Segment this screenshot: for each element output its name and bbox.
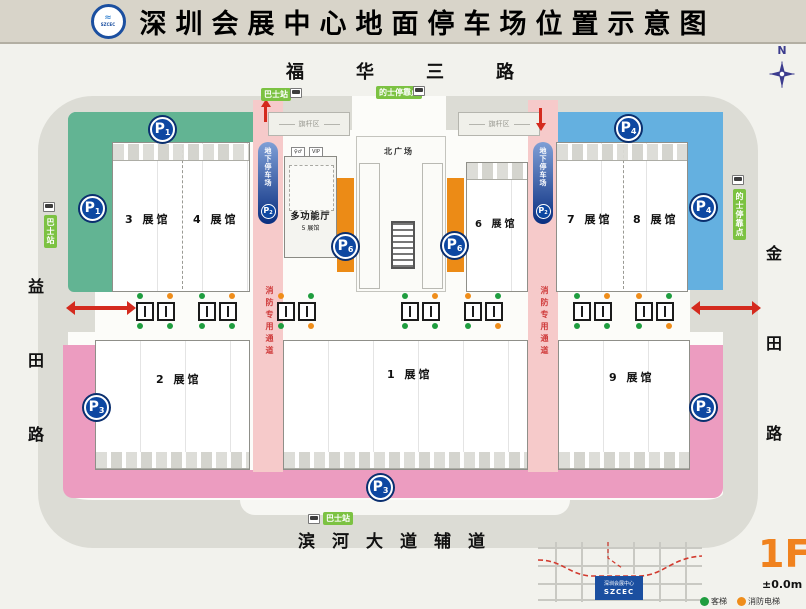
hall-5-label: 5 展馆	[285, 223, 336, 232]
elevator-cluster	[132, 293, 178, 329]
passenger-elevator-icon	[308, 293, 314, 299]
parking-icon-p4: P4	[691, 195, 716, 220]
bus-bay	[240, 500, 570, 515]
floor-indicator: 1F	[758, 534, 806, 574]
fire-elevator-icon	[666, 323, 672, 329]
parking-icon-p3: P3	[368, 475, 393, 500]
parking-map: ≈ SZCEC 深圳会展中心地面停车场位置示意图 N 3 展馆 4 展馆 6 展…	[0, 0, 806, 609]
elevator-cluster	[460, 293, 506, 329]
north-entrance-gap	[352, 96, 446, 132]
inset-szcec-box: 深圳会展中心 SZCEC	[595, 576, 643, 600]
elevator-icon	[298, 302, 316, 321]
hall-1-label: 1 展馆	[387, 366, 432, 382]
elevator-icon	[656, 302, 674, 321]
vip-room-label: VIP	[309, 147, 323, 157]
fire-elevator-icon	[636, 293, 642, 299]
hall-6-label: 6 展馆	[475, 215, 517, 230]
taxi-icon	[413, 86, 425, 96]
plaza-colonnade	[422, 163, 443, 289]
passenger-elevator-icon	[495, 293, 501, 299]
entry-arrow-icon	[264, 106, 267, 122]
fire-elevator-icon	[278, 293, 284, 299]
road-label-yitian: 益田路	[22, 278, 46, 500]
two-way-arrow-icon	[699, 306, 753, 310]
fire-elevator-icon	[604, 293, 610, 299]
underground-parking-sign: 地下停车场 P2	[258, 142, 278, 224]
legend-passenger-elevator: 客梯	[700, 596, 727, 607]
title-bar: ≈ SZCEC 深圳会展中心地面停车场位置示意图	[0, 0, 806, 44]
road-label-fuhua: 福华三路	[286, 58, 566, 84]
fire-elevator-icon	[229, 293, 235, 299]
passenger-elevator-icon	[465, 323, 471, 329]
bus-stop-label: 巴士站	[323, 512, 353, 525]
compass-north-label: N	[777, 44, 786, 57]
elevator-icon	[573, 302, 591, 321]
fire-lane-label: 消防专用通道	[264, 286, 275, 358]
passenger-elevator-icon	[137, 293, 143, 299]
parking-icon-p3: P3	[691, 395, 716, 420]
booth-strip	[467, 163, 527, 180]
multi-function-hall: 多功能厅 5 展馆	[284, 156, 337, 258]
passenger-elevator-icon	[167, 323, 173, 329]
parking-icon-p1: P1	[150, 117, 175, 142]
elevator-cluster	[273, 293, 319, 329]
parking-icon-p6: P6	[333, 234, 358, 259]
hall-3-4: 3 展馆 4 展馆	[112, 142, 250, 292]
underground-parking-sign: 地下停车场 P2	[533, 142, 553, 224]
passenger-elevator-icon	[666, 293, 672, 299]
escalator-icon	[391, 221, 415, 269]
elevator-cluster	[397, 293, 443, 329]
bus-icon	[308, 514, 320, 524]
elevator-icon	[157, 302, 175, 321]
hall-6: 6 展馆	[466, 162, 528, 292]
passenger-elevator-icon	[229, 323, 235, 329]
hall-divider	[182, 145, 183, 289]
exit-arrow-icon	[539, 108, 542, 124]
elevator-icon	[277, 302, 295, 321]
page-title: 深圳会展中心地面停车场位置示意图	[140, 2, 716, 41]
passenger-elevator-icon	[199, 323, 205, 329]
passenger-elevator-icon	[574, 293, 580, 299]
taxi-icon	[732, 175, 744, 185]
passenger-elevator-icon	[574, 323, 580, 329]
hall-2-label: 2 展馆	[156, 371, 201, 387]
hall-divider	[623, 145, 624, 289]
location-inset-map: 深圳会展中心 SZCEC	[538, 538, 702, 604]
elevator-icon	[635, 302, 653, 321]
booth-strip	[284, 452, 527, 469]
fire-elevator-icon	[308, 323, 314, 329]
parking-icon-p3: P3	[84, 395, 109, 420]
restroom-icon: ♀♂	[291, 147, 305, 157]
hall-3-label: 3 展馆	[125, 211, 170, 227]
passenger-elevator-icon	[402, 323, 408, 329]
two-way-arrow-icon	[74, 306, 128, 310]
plaza-colonnade	[359, 163, 380, 289]
fire-elevator-icon	[432, 293, 438, 299]
fire-lane-label: 消防专用通道	[539, 286, 550, 358]
parking-icon-p2: P2	[536, 204, 551, 219]
multi-hall-label: 多功能厅	[285, 209, 336, 222]
hall-8-label: 8 展馆	[633, 211, 678, 227]
fire-elevator-icon	[495, 323, 501, 329]
road-label-binhe: 滨河大道辅道	[298, 527, 502, 552]
booth-strip	[113, 144, 249, 161]
elevator-icon	[464, 302, 482, 321]
passenger-elevator-icon	[402, 293, 408, 299]
parking-icon-p2: P2	[261, 204, 276, 219]
multi-hall-stage	[289, 165, 334, 211]
flagpole-area: 旗杆区	[458, 112, 540, 136]
parking-area-p3	[63, 470, 723, 498]
elevation-label: ±0.0m	[762, 578, 802, 591]
elevator-icon	[485, 302, 503, 321]
passenger-elevator-icon	[278, 323, 284, 329]
parking-icon-p4: P4	[616, 116, 641, 141]
hall-4-label: 4 展馆	[193, 211, 238, 227]
passenger-elevator-icon	[137, 323, 143, 329]
fire-elevator-icon	[737, 597, 746, 606]
fire-elevator-icon	[465, 293, 471, 299]
fire-elevator-icon	[167, 293, 173, 299]
elevator-cluster	[569, 293, 615, 329]
north-plaza-label: 北广场	[384, 146, 414, 157]
elevator-icon	[422, 302, 440, 321]
hall-2: 2 展馆	[95, 340, 250, 470]
hall-9: 9 展馆	[558, 340, 690, 470]
elevator-icon	[219, 302, 237, 321]
flagpole-area: 旗杆区	[268, 112, 350, 136]
elevator-cluster	[194, 293, 240, 329]
taxi-stop-label: 的士停靠点	[733, 189, 746, 240]
szcec-logo-icon: ≈ SZCEC	[91, 4, 126, 39]
north-plaza	[356, 136, 446, 292]
hall-7-label: 7 展馆	[567, 211, 612, 227]
booth-strip	[559, 452, 689, 469]
parking-icon-p6: P6	[442, 233, 467, 258]
booth-strip	[96, 452, 249, 469]
elevator-icon	[198, 302, 216, 321]
elevator-icon	[136, 302, 154, 321]
road-label-jintian: 金田路	[760, 245, 784, 515]
passenger-elevator-icon	[636, 323, 642, 329]
hall-7-8: 7 展馆 8 展馆	[556, 142, 688, 292]
bus-stop-label: 巴士站	[261, 88, 291, 101]
compass: N	[764, 44, 800, 100]
bus-icon	[43, 202, 55, 212]
elevator-icon	[401, 302, 419, 321]
booth-strip	[557, 144, 687, 161]
hall-1: 1 展馆	[283, 340, 528, 470]
elevator-icon	[594, 302, 612, 321]
legend-fire-elevator: 消防电梯	[737, 596, 780, 607]
hall-9-label: 9 展馆	[609, 369, 654, 385]
passenger-elevator-icon	[432, 323, 438, 329]
parking-icon-p1: P1	[80, 196, 105, 221]
elevator-cluster	[631, 293, 677, 329]
passenger-elevator-icon	[700, 597, 709, 606]
bus-icon	[290, 88, 302, 98]
compass-icon	[767, 57, 797, 91]
passenger-elevator-icon	[199, 293, 205, 299]
bus-stop-label: 巴士站	[44, 215, 57, 248]
legend: 客梯 消防电梯	[700, 596, 780, 607]
passenger-elevator-icon	[604, 323, 610, 329]
